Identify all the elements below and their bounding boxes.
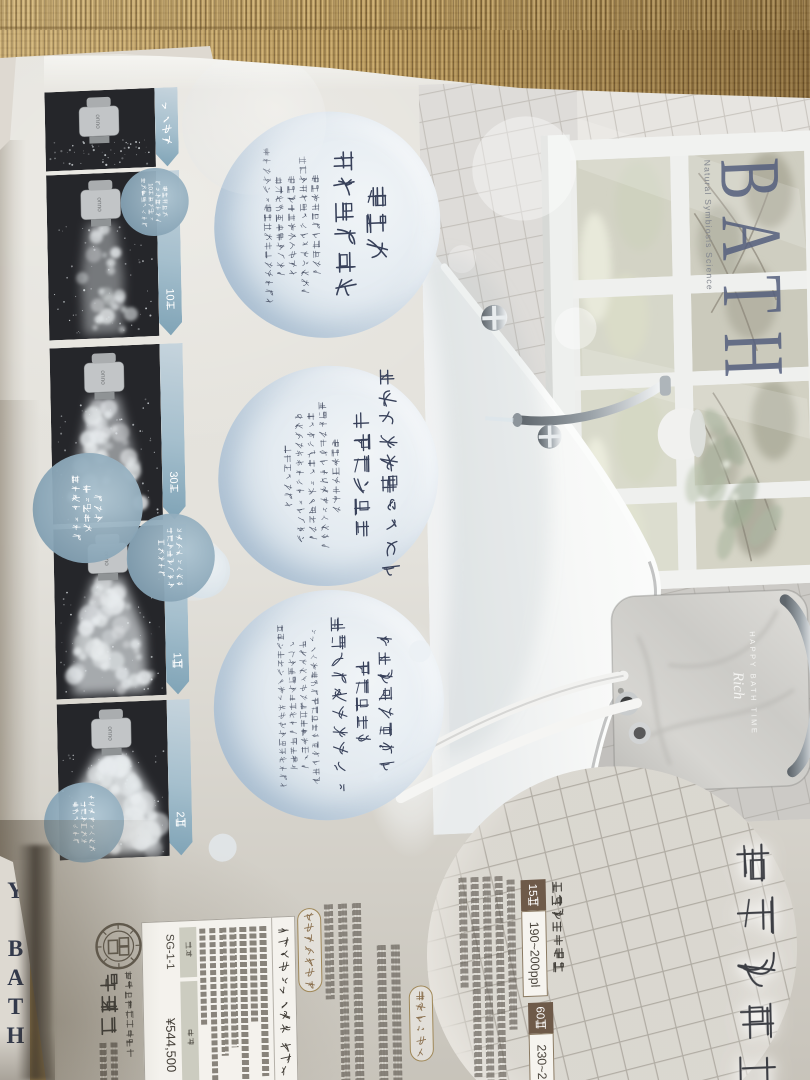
svg-text:onno: onno [106, 726, 113, 741]
svg-text:onno: onno [96, 197, 103, 212]
svg-text:B: B [702, 156, 798, 201]
svg-text:T: T [704, 274, 800, 316]
svg-text:H: H [705, 330, 801, 379]
svg-text:15: 15 [527, 883, 539, 896]
svg-text:1: 1 [171, 652, 183, 659]
svg-text:A: A [703, 213, 799, 262]
svg-text:10: 10 [163, 288, 175, 301]
svg-text:230~250ppb: 230~250ppb [534, 1044, 549, 1080]
svg-text:30: 30 [167, 471, 179, 484]
svg-text:onno: onno [94, 114, 101, 129]
svg-text:2: 2 [174, 811, 186, 818]
svg-text:Rich: Rich [730, 671, 747, 700]
svg-text:60: 60 [534, 1006, 546, 1019]
svg-text:onno: onno [99, 370, 106, 385]
svg-text:10: 10 [147, 183, 153, 191]
svg-text:190~200ppb: 190~200ppb [527, 921, 542, 987]
